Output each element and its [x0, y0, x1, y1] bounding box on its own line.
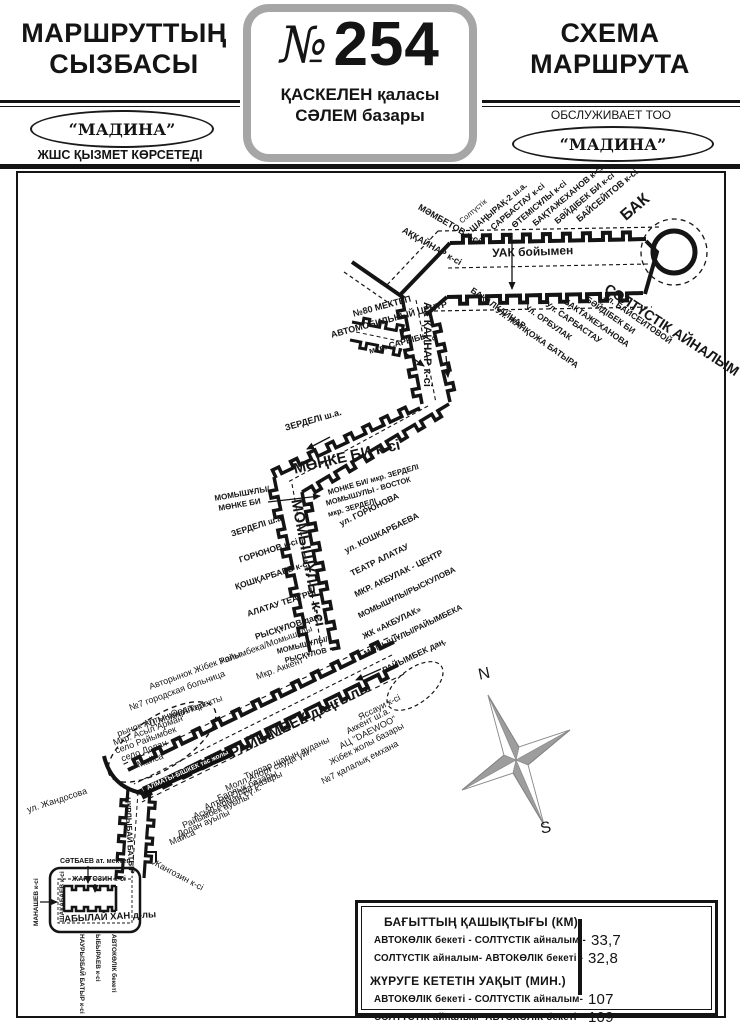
map-label: НАУРЫЗБАЙ БАТЫР к-сі: [78, 934, 85, 1014]
time-row-value: 109: [588, 1009, 614, 1026]
distance-row-value: 33,7: [591, 932, 621, 949]
distance-row: АВТОКӨЛІК бекеті - СОЛТҮСТІК айналым - 3…: [374, 932, 703, 949]
map-label: МАНАШЕВ к-сі: [34, 878, 41, 926]
map-label: АБЫЛАЙ ХАН д-лы: [64, 910, 156, 924]
route-info-box-inner: БАҒЫТТЫҢ ҚАШЫҚТЫҒЫ (КМ) АВТОКӨЛІК бекеті…: [361, 906, 712, 1010]
distance-row-label: СОЛТҮСТІК айналым- АВТОКӨЛІК бекеті -: [374, 953, 583, 964]
map-label: Жангозин к-сі: [151, 858, 205, 892]
map-label: БАК: [618, 191, 653, 224]
map-label: Майса: [168, 828, 196, 847]
time-row: АВТОКӨЛІК бекеті - СОЛТҮСТІК айналым- 10…: [374, 991, 703, 1008]
map-label: ЗЕРДЕЛІ ш.а.: [284, 408, 343, 433]
map-label: ГОРЮНОВ к-сі: [238, 537, 299, 564]
time-row-label: СОЛТҮСТІК айналым- АВТОКӨЛІК бекеті -: [374, 1012, 583, 1023]
compass-south-label: S: [539, 820, 553, 838]
distance-row-value: 32,8: [588, 950, 618, 967]
map-label-layer: МӘМБЕТОВ к-сіАҚҚАЙНАР к-сіСолтүстікШАҢЫР…: [0, 0, 740, 1034]
map-label: УАК бойымен: [492, 244, 573, 259]
time-row: СОЛТҮСТІК айналым- АВТОКӨЛІК бекеті - 10…: [374, 1009, 703, 1026]
map-label: АВТОКӨЛІК бекеті: [110, 934, 117, 993]
map-label: АК ҚАЙНАР к-сі: [421, 302, 432, 387]
map-label: ЫБЫРАЕВ к-сі: [94, 934, 101, 982]
map-label: ЖАНГОЗИН к-сі: [72, 876, 126, 883]
route-diagram-page: МАРШРУТТЫҢ СЫЗБАСЫ № 254 ҚАСКЕЛЕН қаласы…: [0, 0, 740, 1034]
compass-north-label: N: [477, 666, 492, 684]
distance-row: СОЛТҮСТІК айналым- АВТОКӨЛІК бекеті - 32…: [374, 950, 703, 967]
map-label: СӘТБАЕВ ат. мектеп: [60, 858, 131, 865]
map-label: ЗЕРДЕЛІ ш.а.: [230, 513, 285, 538]
route-info-box: БАҒЫТТЫҢ ҚАШЫҚТЫҒЫ (КМ) АВТОКӨЛІК бекеті…: [355, 900, 718, 1016]
time-title: ЖҮРУГЕ КЕТЕТІН УАҚЫТ (МИН.): [370, 974, 703, 988]
time-row-value: 107: [588, 991, 614, 1008]
info-box-vertical-bar: [578, 919, 582, 995]
time-row-label: АВТОКӨЛІК бекеті - СОЛТҮСТІК айналым-: [374, 994, 583, 1005]
distance-title: БАҒЫТТЫҢ ҚАШЫҚТЫҒЫ (КМ): [384, 915, 703, 929]
map-label: ҚОШҚАРБАЕВ к-сі: [234, 559, 310, 591]
map-label: ул. Жандосова: [26, 787, 88, 815]
map-label: мкр. САРЫБЫ: [368, 331, 429, 355]
distance-row-label: АВТОКӨЛІК бекеті - СОЛТҮСТІК айналым -: [374, 935, 586, 946]
map-label: Мкр. Аккент: [255, 656, 305, 681]
